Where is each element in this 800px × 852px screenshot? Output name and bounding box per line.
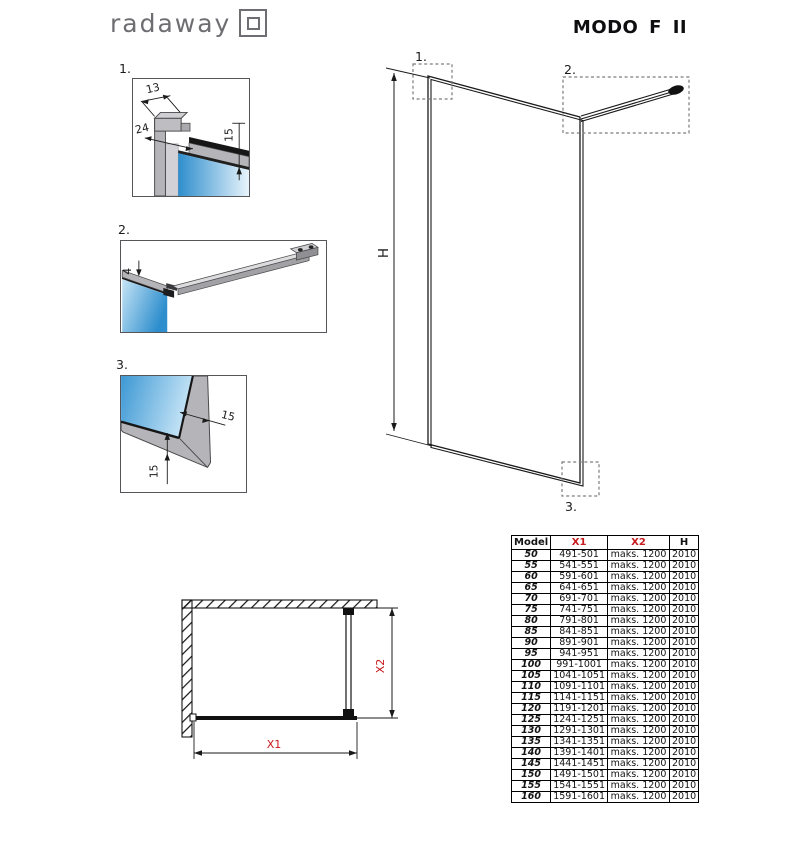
value-cell: 791-801 <box>551 616 608 627</box>
value-cell: maks. 1200 <box>608 759 670 770</box>
value-cell: 1391-1401 <box>551 748 608 759</box>
col-header-x2: X2 <box>608 536 670 550</box>
value-cell: 2010 <box>670 660 699 671</box>
value-cell: 2010 <box>670 583 699 594</box>
elevation-marker-2: 2. <box>564 62 576 77</box>
value-cell: 591-601 <box>551 572 608 583</box>
value-cell: maks. 1200 <box>608 671 670 682</box>
table-row: 75741-751maks. 12002010 <box>512 605 699 616</box>
dimension-label-13: 13 <box>145 80 161 96</box>
width-dimension-label: X1 <box>267 738 282 751</box>
value-cell: 2010 <box>670 715 699 726</box>
value-cell: 1441-1451 <box>551 759 608 770</box>
table-row: 70691-701maks. 12002010 <box>512 594 699 605</box>
screw-dot <box>309 245 314 248</box>
value-cell: 2010 <box>670 704 699 715</box>
plan-drawing: X2 X1 <box>178 590 403 770</box>
value-cell: 1241-1251 <box>551 715 608 726</box>
detail-1-box: 13 24 15 <box>132 78 250 197</box>
value-cell: 1191-1201 <box>551 704 608 715</box>
table-row: 85841-851maks. 12002010 <box>512 627 699 638</box>
value-cell: 1591-1601 <box>551 792 608 803</box>
logo-square-inner <box>247 17 260 30</box>
value-cell: maks. 1200 <box>608 616 670 627</box>
table-row: 1551541-1551maks. 12002010 <box>512 781 699 792</box>
model-cell: 160 <box>512 792 551 803</box>
value-cell: 1341-1351 <box>551 737 608 748</box>
value-cell: maks. 1200 <box>608 704 670 715</box>
value-cell: maks. 1200 <box>608 792 670 803</box>
table-row: 1101091-1101maks. 12002010 <box>512 682 699 693</box>
value-cell: maks. 1200 <box>608 561 670 572</box>
value-cell: 2010 <box>670 781 699 792</box>
model-cell: 135 <box>512 737 551 748</box>
arm-wall-connector <box>343 608 354 615</box>
value-cell: maks. 1200 <box>608 715 670 726</box>
value-cell: 2010 <box>670 616 699 627</box>
value-cell: 1541-1551 <box>551 781 608 792</box>
value-cell: maks. 1200 <box>608 682 670 693</box>
model-cell: 90 <box>512 638 551 649</box>
model-cell: 145 <box>512 759 551 770</box>
value-cell: 2010 <box>670 792 699 803</box>
model-cell: 100 <box>512 660 551 671</box>
glass-panel-outline-inner <box>431 80 583 487</box>
table-row: 1501491-1501maks. 12002010 <box>512 770 699 781</box>
value-cell: maks. 1200 <box>608 638 670 649</box>
table-row: 65641-651maks. 12002010 <box>512 583 699 594</box>
dimension-label-24: 24 <box>134 121 150 137</box>
model-cell: 70 <box>512 594 551 605</box>
table-row: 1301291-1301maks. 12002010 <box>512 726 699 737</box>
logo-text: radaway <box>110 11 231 36</box>
value-cell: maks. 1200 <box>608 572 670 583</box>
glass-panel-outline <box>428 76 580 483</box>
glass-panel-plan <box>194 716 357 720</box>
depth-dimension-label: X2 <box>374 659 387 674</box>
detail-1-label: 1. <box>119 61 131 76</box>
value-cell: 1141-1151 <box>551 693 608 704</box>
table-row: 55541-551maks. 12002010 <box>512 561 699 572</box>
value-cell: 2010 <box>670 759 699 770</box>
screw-dot <box>298 248 303 251</box>
value-cell: 2010 <box>670 737 699 748</box>
value-cell: maks. 1200 <box>608 649 670 660</box>
profile-cap-front <box>155 118 182 131</box>
model-cell: 85 <box>512 627 551 638</box>
height-dimension-label: H <box>376 248 392 258</box>
plan-figure: X2 X1 <box>178 590 403 770</box>
dimension-label-15-right: 15 <box>222 128 235 142</box>
detail-3-label: 3. <box>116 357 128 372</box>
value-cell: maks. 1200 <box>608 550 670 561</box>
value-cell: maks. 1200 <box>608 605 670 616</box>
model-cell: 150 <box>512 770 551 781</box>
model-cell: 155 <box>512 781 551 792</box>
model-cell: 55 <box>512 561 551 572</box>
value-cell: 2010 <box>670 605 699 616</box>
value-cell: 2010 <box>670 671 699 682</box>
value-cell: 641-651 <box>551 583 608 594</box>
value-cell: maks. 1200 <box>608 770 670 781</box>
model-cell: 65 <box>512 583 551 594</box>
profile-cap-step <box>181 123 190 131</box>
value-cell: maks. 1200 <box>608 594 670 605</box>
value-cell: 491-501 <box>551 550 608 561</box>
detail-3-drawing: 15 15 <box>121 376 246 492</box>
table-header-row: Model X1 X2 H <box>512 536 699 550</box>
model-cell: 115 <box>512 693 551 704</box>
detail-2-label: 2. <box>118 222 130 237</box>
value-cell: 2010 <box>670 649 699 660</box>
value-cell: 1491-1501 <box>551 770 608 781</box>
value-cell: maks. 1200 <box>608 693 670 704</box>
model-cell: 105 <box>512 671 551 682</box>
col-header-model: Model <box>512 536 551 550</box>
wall-profile-plan <box>190 714 196 721</box>
table-row: 1351341-1351maks. 12002010 <box>512 737 699 748</box>
value-cell: maks. 1200 <box>608 781 670 792</box>
logo-square-icon <box>239 9 267 37</box>
table-row: 1251241-1251maks. 12002010 <box>512 715 699 726</box>
model-cell: 50 <box>512 550 551 561</box>
value-cell: 2010 <box>670 726 699 737</box>
dimension-label-15-bottom: 15 <box>147 464 160 478</box>
table-row: 90891-901maks. 12002010 <box>512 638 699 649</box>
table-row: 1401391-1401maks. 12002010 <box>512 748 699 759</box>
model-cell: 95 <box>512 649 551 660</box>
model-cell: 60 <box>512 572 551 583</box>
profile-cap-top <box>155 112 187 118</box>
dimension-label-4: 4 <box>121 268 134 275</box>
model-cell: 140 <box>512 748 551 759</box>
value-cell: 2010 <box>670 693 699 704</box>
value-cell: 2010 <box>670 561 699 572</box>
model-cell: 80 <box>512 616 551 627</box>
col-header-h: H <box>670 536 699 550</box>
value-cell: maks. 1200 <box>608 627 670 638</box>
elevation-marker-3: 3. <box>565 499 577 514</box>
table-row: 95941-951maks. 12002010 <box>512 649 699 660</box>
profile-side-face <box>165 144 178 196</box>
value-cell: 2010 <box>670 627 699 638</box>
value-cell: 2010 <box>670 594 699 605</box>
table-row: 1051041-1051maks. 12002010 <box>512 671 699 682</box>
table-row: 1601591-1601maks. 12002010 <box>512 792 699 803</box>
detail-marker-box-2 <box>563 77 689 133</box>
value-cell: 1041-1051 <box>551 671 608 682</box>
spec-sheet-page: radaway MODO F II 1. 2. 3. <box>0 0 800 852</box>
value-cell: 541-551 <box>551 561 608 572</box>
value-cell: 2010 <box>670 550 699 561</box>
arm-wall-cap <box>667 84 685 97</box>
detail-1-drawing: 13 24 15 <box>133 79 249 196</box>
value-cell: 2010 <box>670 682 699 693</box>
arm-side-face <box>178 255 309 295</box>
table-row: 60591-601maks. 12002010 <box>512 572 699 583</box>
product-title: MODO F II <box>540 17 720 38</box>
elevation-marker-1: 1. <box>415 49 427 64</box>
detail-3-box: 15 15 <box>120 375 247 493</box>
model-cell: 120 <box>512 704 551 715</box>
value-cell: 1291-1301 <box>551 726 608 737</box>
value-cell: 991-1001 <box>551 660 608 671</box>
detail-2-drawing: 4 <box>121 241 326 332</box>
elevation-figure: H 1. 2. 3. <box>375 45 705 520</box>
value-cell: 2010 <box>670 770 699 781</box>
table-row: 50491-501maks. 12002010 <box>512 550 699 561</box>
table-row: 1201191-1201maks. 12002010 <box>512 704 699 715</box>
value-cell: maks. 1200 <box>608 737 670 748</box>
value-cell: 941-951 <box>551 649 608 660</box>
value-cell: 2010 <box>670 748 699 759</box>
arm-glass-connector <box>343 709 354 716</box>
value-cell: maks. 1200 <box>608 660 670 671</box>
model-cell: 125 <box>512 715 551 726</box>
table-row: 100991-1001maks. 12002010 <box>512 660 699 671</box>
col-header-x1: X1 <box>551 536 608 550</box>
value-cell: 841-851 <box>551 627 608 638</box>
value-cell: maks. 1200 <box>608 748 670 759</box>
model-cell: 110 <box>512 682 551 693</box>
radaway-logo: radaway <box>110 9 267 37</box>
support-arm <box>581 91 675 119</box>
value-cell: 691-701 <box>551 594 608 605</box>
value-cell: maks. 1200 <box>608 583 670 594</box>
value-cell: 2010 <box>670 638 699 649</box>
value-cell: 1091-1101 <box>551 682 608 693</box>
table-row: 1451441-1451maks. 12002010 <box>512 759 699 770</box>
dimension-label-15-side: 15 <box>220 408 236 424</box>
table-row: 1151141-1151maks. 12002010 <box>512 693 699 704</box>
support-arm <box>581 88 675 116</box>
value-cell: maks. 1200 <box>608 726 670 737</box>
value-cell: 2010 <box>670 572 699 583</box>
model-cell: 75 <box>512 605 551 616</box>
detail-2-box: 4 <box>120 240 327 333</box>
elevation-drawing: H 1. 2. 3. <box>375 45 705 520</box>
size-table-body: 50491-501maks. 1200201055541-551maks. 12… <box>512 550 699 803</box>
wall-top <box>182 600 377 608</box>
value-cell: 741-751 <box>551 605 608 616</box>
table-row: 80791-801maks. 12002010 <box>512 616 699 627</box>
arm-top-face <box>173 252 309 289</box>
size-table: Model X1 X2 H 50491-501maks. 12002010555… <box>511 535 699 803</box>
value-cell: 891-901 <box>551 638 608 649</box>
model-cell: 130 <box>512 726 551 737</box>
support-arm <box>581 94 675 122</box>
